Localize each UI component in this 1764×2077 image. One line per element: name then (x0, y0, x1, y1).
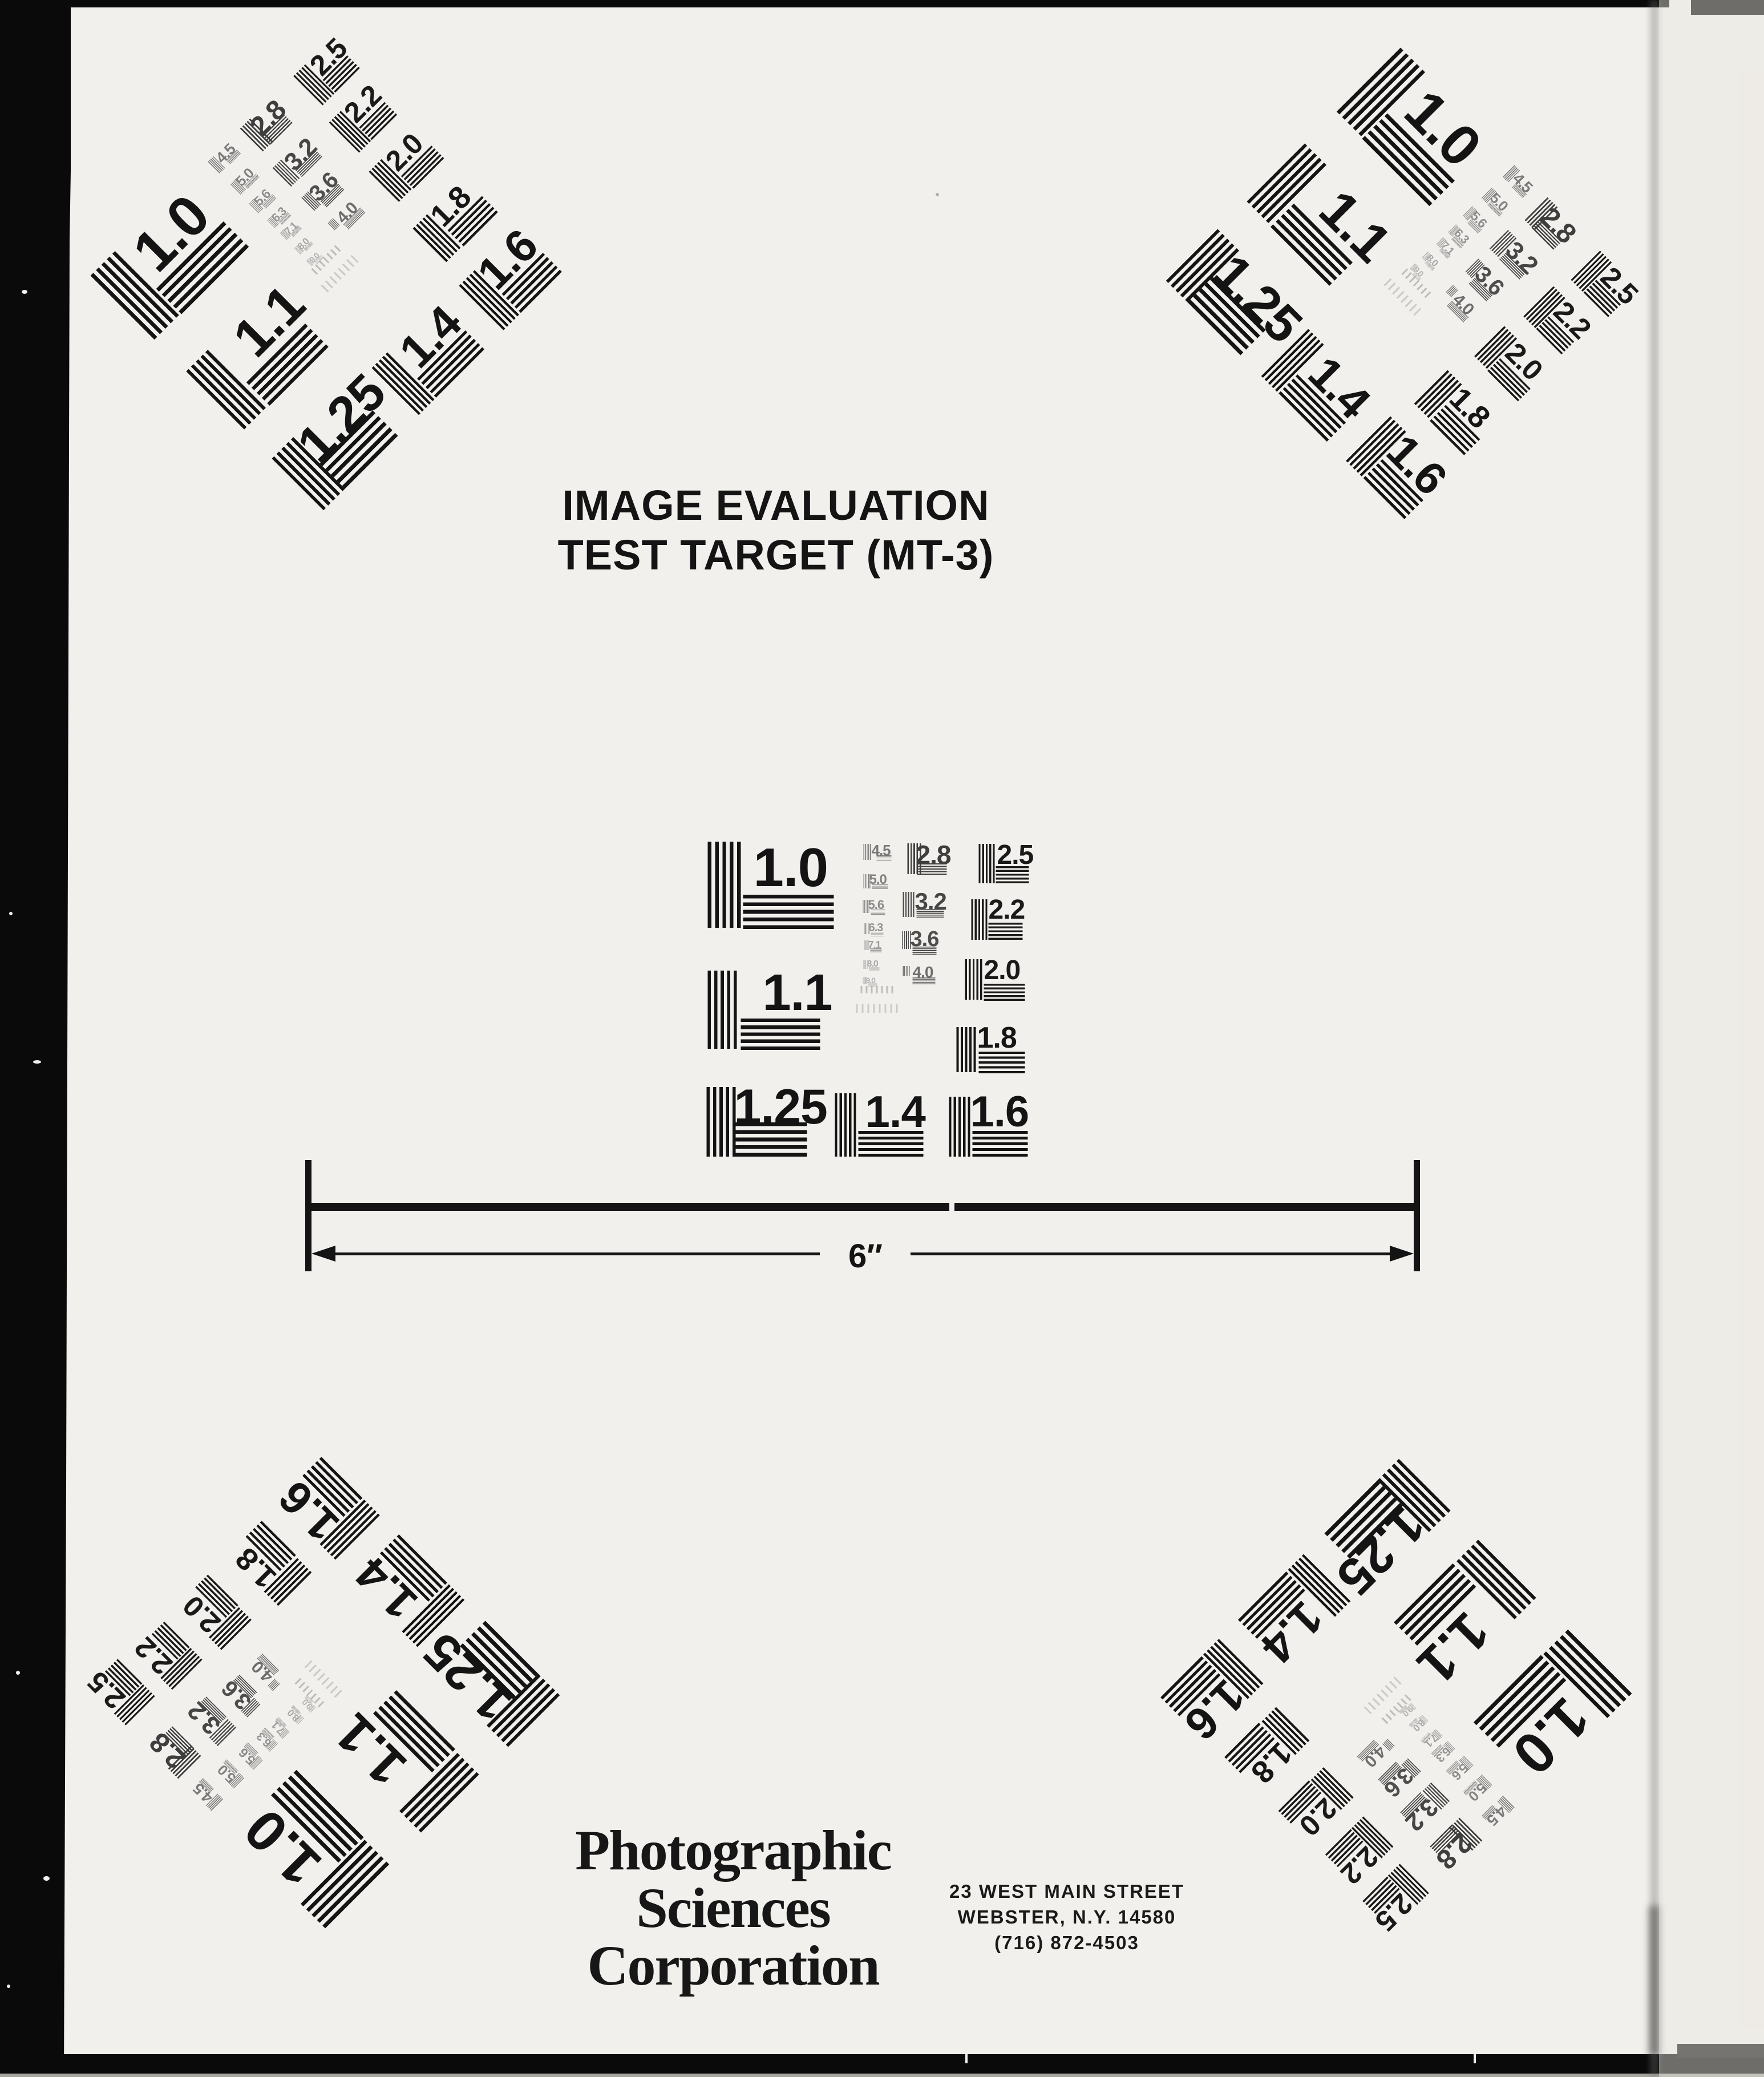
scan-edge-bottom (0, 2054, 1764, 2074)
bar-group-label: 2.2 (989, 896, 1025, 924)
vertical-bars (708, 842, 741, 928)
page-fold-line-lower (1649, 1906, 1660, 2055)
horizontal-bars (979, 1052, 1025, 1073)
horizontal-bars (859, 1131, 924, 1157)
micro-bar-smudge (861, 986, 896, 993)
company-line-1: Photographic (545, 1821, 921, 1879)
horizontal-bars (877, 855, 892, 860)
horizontal-bars (736, 1122, 807, 1157)
horizontal-bars (743, 895, 834, 929)
vertical-bars (864, 844, 871, 860)
horizontal-bars (871, 948, 882, 952)
micro-bar-smudge (856, 1004, 901, 1013)
horizontal-bars (989, 923, 1023, 940)
scratch-nick (1474, 2054, 1476, 2063)
scratch-nick (965, 2054, 968, 2063)
bar-group-label: 2.5 (997, 842, 1034, 869)
resolution-target-bottom-left: 1.01.11.251.41.62.52.22.01.82.83.23.64.0… (86, 1456, 560, 1930)
film-speck (16, 1671, 20, 1675)
resolution-target-bottom-right: 1.01.11.251.41.62.52.22.01.82.83.23.64.0… (1160, 1459, 1634, 1933)
vertical-bars (708, 971, 737, 1049)
scale-arrow-line-left (328, 1252, 820, 1255)
address-line-1: 23 WEST MAIN STREET (924, 1878, 1209, 1904)
company-line-3: Corporation (545, 1937, 921, 1994)
scale-bar-end-left (305, 1160, 311, 1271)
bar-group-label: 1.6 (970, 1090, 1029, 1134)
scale-bar-rule (311, 1203, 1414, 1211)
horizontal-bars (996, 866, 1029, 883)
horizontal-bars (869, 967, 880, 971)
scan-edge-bottom-strip (0, 2074, 1764, 2077)
company-line-2: Sciences (545, 1879, 921, 1937)
address-block: 23 WEST MAIN STREET WEBSTER, N.Y. 14580 … (924, 1878, 1209, 1955)
resolution-target-top-left: 1.01.11.251.41.62.52.22.01.82.83.23.64.0… (89, 37, 563, 511)
horizontal-bars (741, 1019, 820, 1050)
title-line-2: TEST TARGET (MT-3) (491, 530, 1061, 580)
address-line-2: WEBSTER, N.Y. 14580 (924, 1904, 1209, 1930)
scale-bar-rule-nick (949, 1203, 954, 1211)
vertical-bars (1382, 1739, 1395, 1751)
horizontal-bars (917, 909, 944, 918)
vertical-bars (707, 1087, 736, 1157)
page-fold-line (1650, 0, 1659, 2077)
arrowhead-left-icon (311, 1246, 335, 1262)
film-speck (43, 1876, 50, 1881)
scale-bar-end-right (1414, 1160, 1420, 1271)
vertical-bars (972, 899, 988, 940)
bar-group-label: 1.8 (977, 1023, 1017, 1053)
right-paper-strip (1659, 0, 1764, 2077)
film-speck (22, 290, 27, 294)
horizontal-bars (872, 884, 888, 889)
vertical-bars (979, 844, 995, 883)
bar-group-label: 1.1 (763, 967, 832, 1019)
vertical-bars (835, 1093, 856, 1157)
film-speck (7, 1985, 10, 1988)
scanned-test-target-page: IMAGE EVALUATION TEST TARGET (MT-3) 1.01… (0, 0, 1764, 2077)
bar-group-label: 2.0 (984, 957, 1021, 984)
arrowhead-right-icon (1390, 1246, 1414, 1262)
vertical-bars (965, 959, 982, 1000)
horizontal-bars (871, 910, 885, 915)
vertical-bars (903, 892, 915, 917)
horizontal-bars (913, 947, 937, 955)
vertical-bars (327, 218, 340, 231)
scale-bar-label: 6″ (820, 1237, 911, 1275)
bar-group-label: 1.4 (865, 1089, 925, 1134)
title-block: IMAGE EVALUATION TEST TARGET (MT-3) (491, 480, 1061, 580)
vertical-bars (949, 1097, 970, 1157)
film-speck (33, 1060, 41, 1064)
address-line-3: (716) 872-4503 (924, 1930, 1209, 1955)
horizontal-bars (973, 1131, 1028, 1157)
vertical-bars (957, 1027, 976, 1072)
title-line-1: IMAGE EVALUATION (491, 480, 1061, 530)
horizontal-bars (917, 863, 947, 875)
scale-arrow-line-right (911, 1252, 1395, 1255)
resolution-target-top-right: 1.01.11.251.41.62.52.22.01.82.83.23.64.0… (1166, 46, 1640, 520)
scan-edge-left (0, 0, 71, 2077)
film-speck (9, 912, 13, 915)
paper-speck (936, 193, 939, 196)
horizontal-bars (913, 977, 936, 984)
scan-edge-top (0, 0, 1669, 7)
horizontal-bars (871, 932, 884, 936)
vertical-bars (903, 931, 911, 949)
company-name-block: Photographic Sciences Corporation (545, 1821, 921, 1994)
resolution-target-center: 1.01.11.251.41.62.52.22.01.82.83.23.64.0… (707, 841, 1029, 1157)
vertical-bars (268, 1679, 280, 1691)
bar-group-label: 1.0 (754, 841, 828, 895)
vertical-bars (903, 966, 910, 976)
horizontal-bars (984, 984, 1025, 1001)
